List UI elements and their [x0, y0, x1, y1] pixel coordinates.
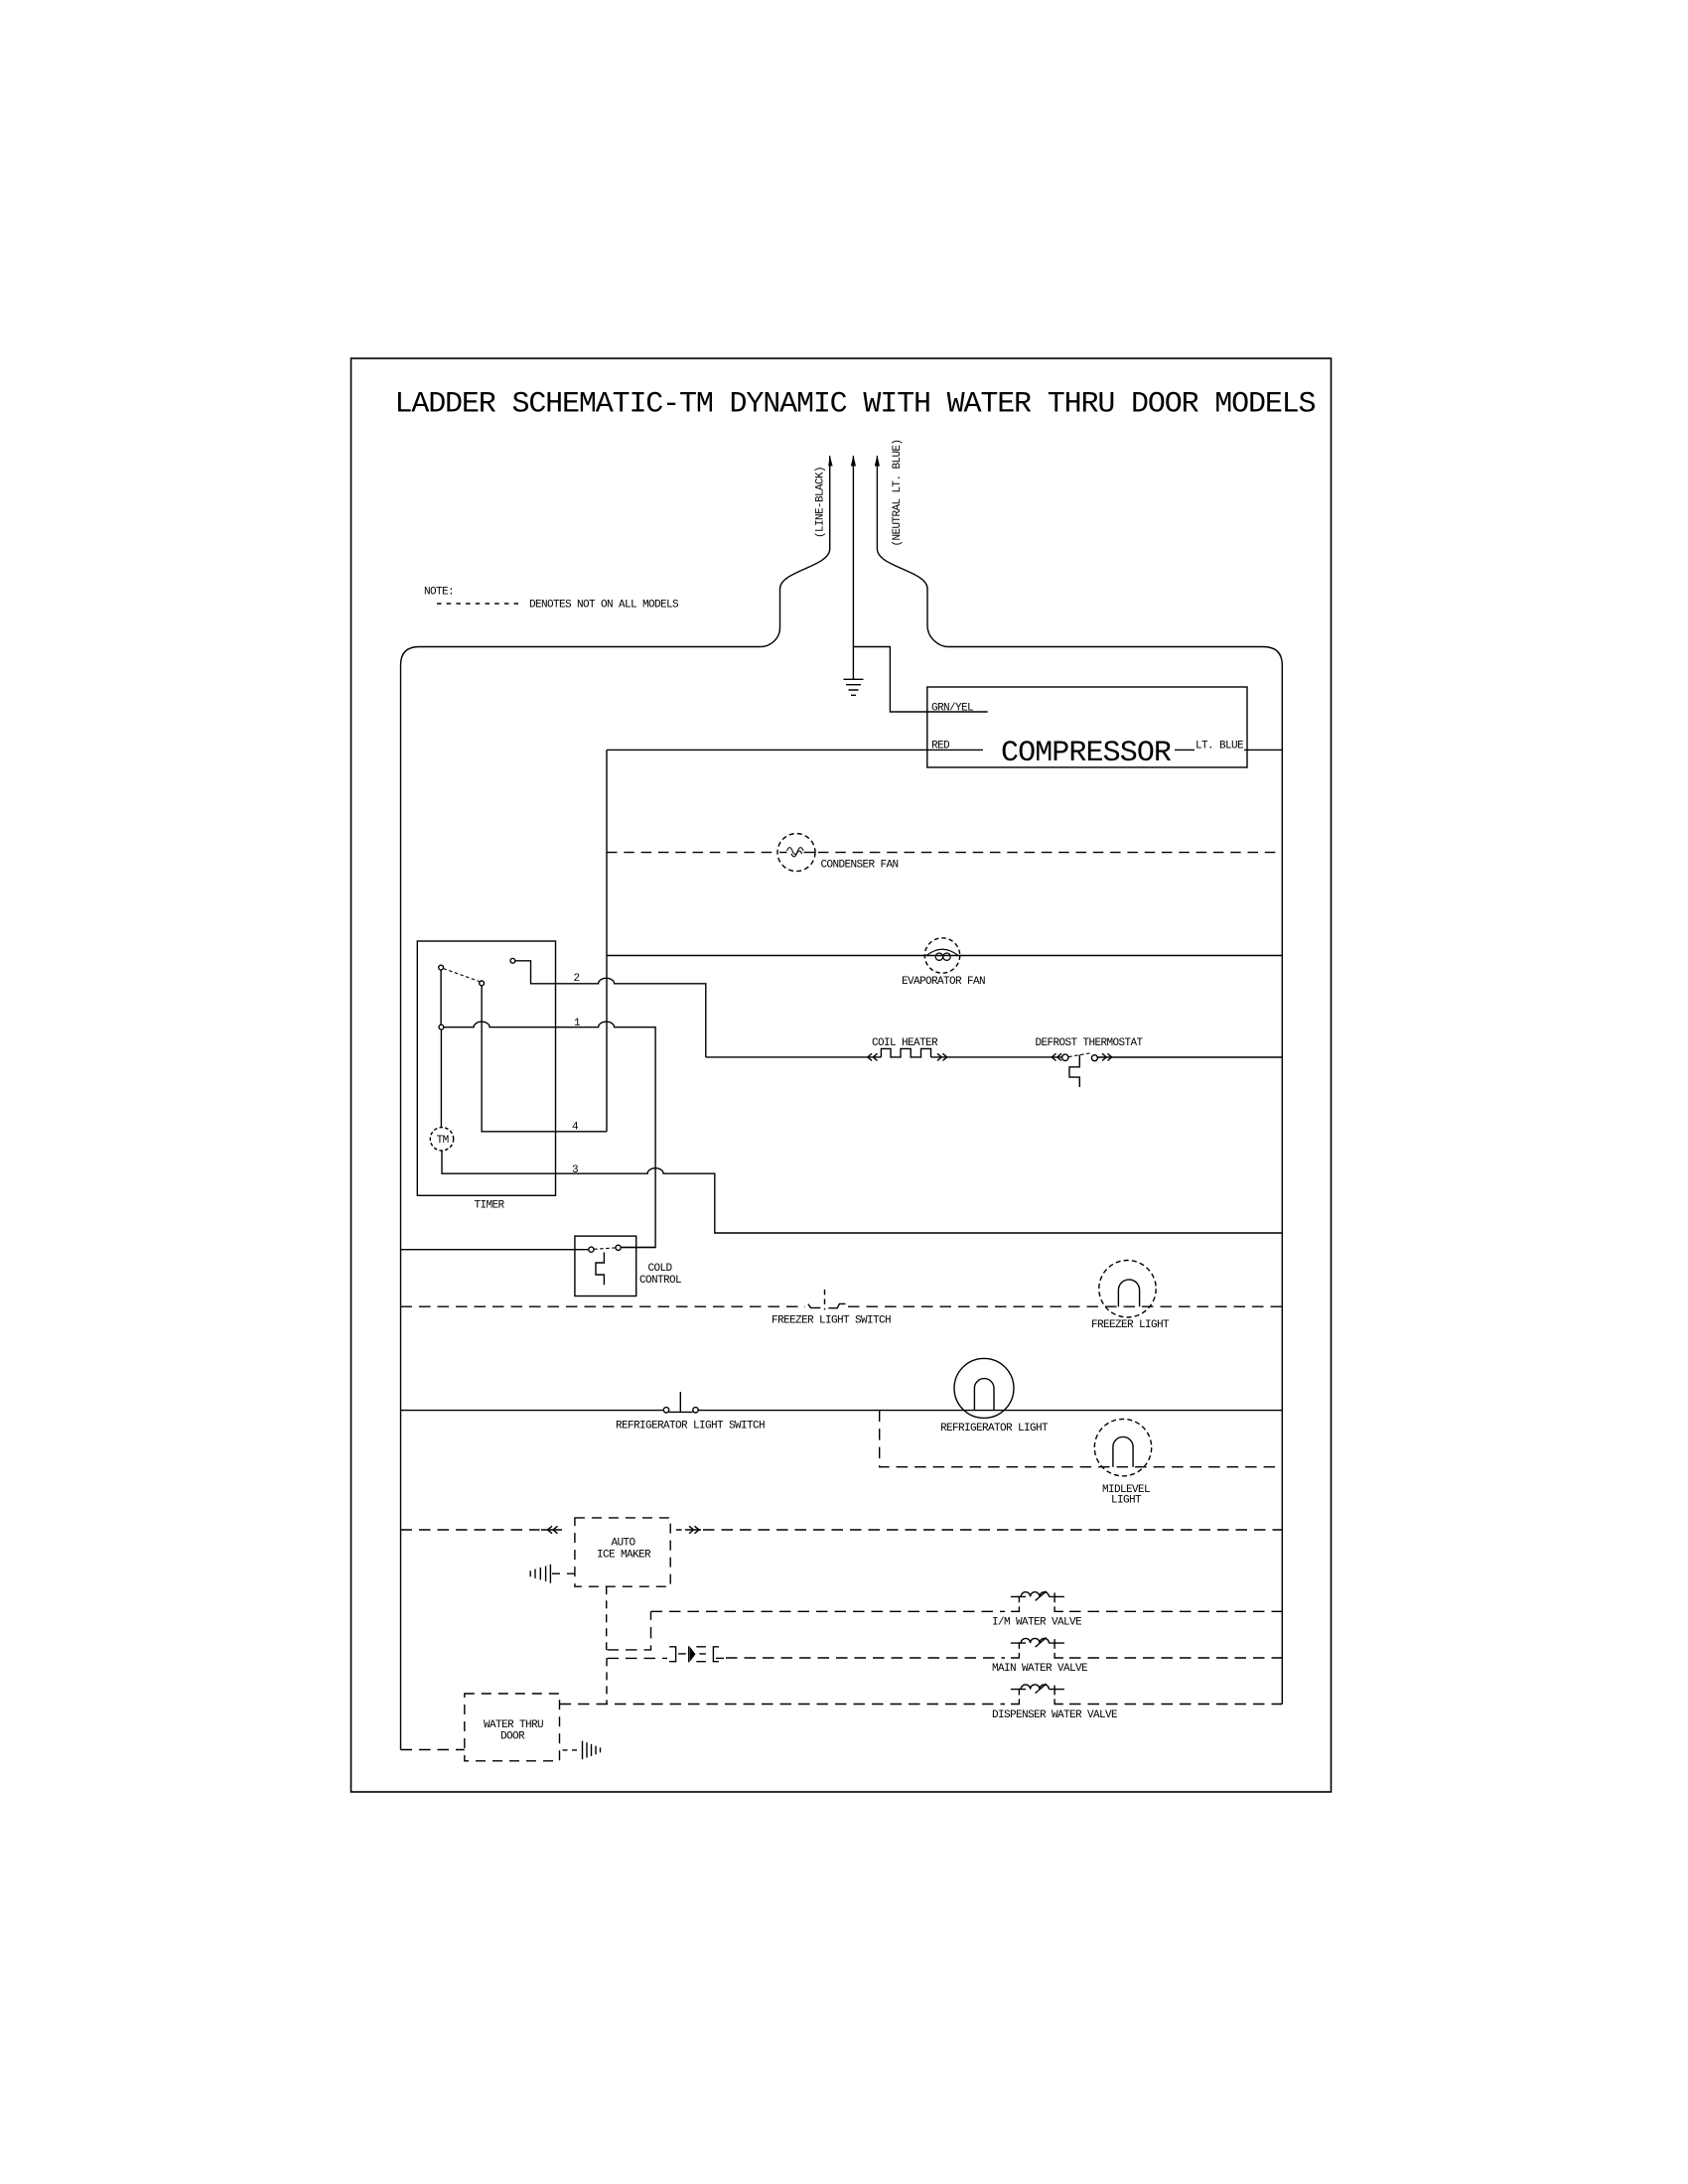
svg-text:3: 3 [572, 1164, 578, 1176]
svg-text:COIL HEATER: COIL HEATER [872, 1037, 938, 1049]
svg-text:TM: TM [437, 1135, 449, 1147]
svg-text:LADDER SCHEMATIC-TM DYNAMIC WI: LADDER SCHEMATIC-TM DYNAMIC WITH WATER T… [395, 388, 1316, 422]
svg-text:FREEZER LIGHT: FREEZER LIGHT [1091, 1319, 1170, 1331]
svg-text:DENOTES NOT ON ALL MODELS: DENOTES NOT ON ALL MODELS [529, 600, 679, 612]
svg-text:WATER THRU: WATER THRU [484, 1719, 543, 1731]
svg-text:4: 4 [572, 1122, 579, 1134]
svg-text:COLD: COLD [648, 1263, 673, 1275]
svg-text:DISPENSER WATER VALVE: DISPENSER WATER VALVE [992, 1709, 1118, 1721]
svg-text:TIMER: TIMER [475, 1200, 505, 1212]
svg-text:2: 2 [574, 973, 580, 985]
svg-text:I/M WATER VALVE: I/M WATER VALVE [992, 1617, 1082, 1629]
svg-text:DEFROST THERMOSTAT: DEFROST THERMOSTAT [1036, 1037, 1144, 1049]
svg-text:(NEUTRAL LT. BLUE): (NEUTRAL LT. BLUE) [892, 439, 904, 546]
svg-text:MAIN WATER VALVE: MAIN WATER VALVE [992, 1663, 1088, 1675]
svg-text:ICE MAKER: ICE MAKER [597, 1550, 651, 1562]
svg-text:NOTE:: NOTE: [424, 587, 454, 599]
svg-text:REFRIGERATOR LIGHT SWITCH: REFRIGERATOR LIGHT SWITCH [616, 1421, 765, 1433]
svg-text:CONDENSER FAN: CONDENSER FAN [821, 860, 899, 872]
svg-text:GRN/YEL: GRN/YEL [931, 703, 973, 715]
svg-text:(LINE-BLACK): (LINE-BLACK) [815, 467, 827, 538]
svg-text:AUTO: AUTO [612, 1538, 636, 1550]
svg-text:FREEZER LIGHT SWITCH: FREEZER LIGHT SWITCH [772, 1315, 891, 1327]
svg-text:COMPRESSOR: COMPRESSOR [1001, 737, 1172, 770]
svg-text:DOOR: DOOR [500, 1731, 525, 1743]
svg-text:1: 1 [574, 1018, 581, 1029]
svg-text:EVAPORATOR FAN: EVAPORATOR FAN [902, 976, 985, 988]
svg-text:LIGHT: LIGHT [1111, 1495, 1142, 1507]
svg-text:CONTROL: CONTROL [639, 1275, 681, 1287]
svg-text:LT. BLUE: LT. BLUE [1196, 741, 1244, 752]
svg-text:REFRIGERATOR LIGHT: REFRIGERATOR LIGHT [940, 1423, 1049, 1434]
